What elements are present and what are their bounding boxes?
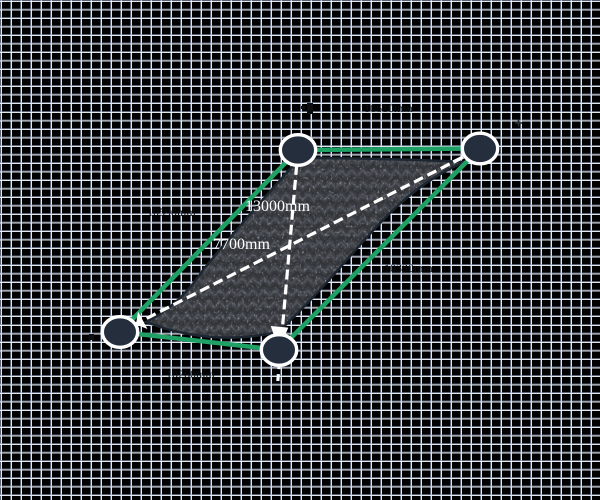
svg-text:13000mm: 13000mm <box>245 198 310 215</box>
svg-text:10610mm: 10610mm <box>364 101 413 115</box>
svg-text:7700mm: 7700mm <box>213 236 270 253</box>
svg-text:10330mm: 10330mm <box>384 261 433 275</box>
svg-text:10590mm: 10590mm <box>147 205 196 219</box>
svg-text:10260mm: 10260mm <box>166 367 215 381</box>
